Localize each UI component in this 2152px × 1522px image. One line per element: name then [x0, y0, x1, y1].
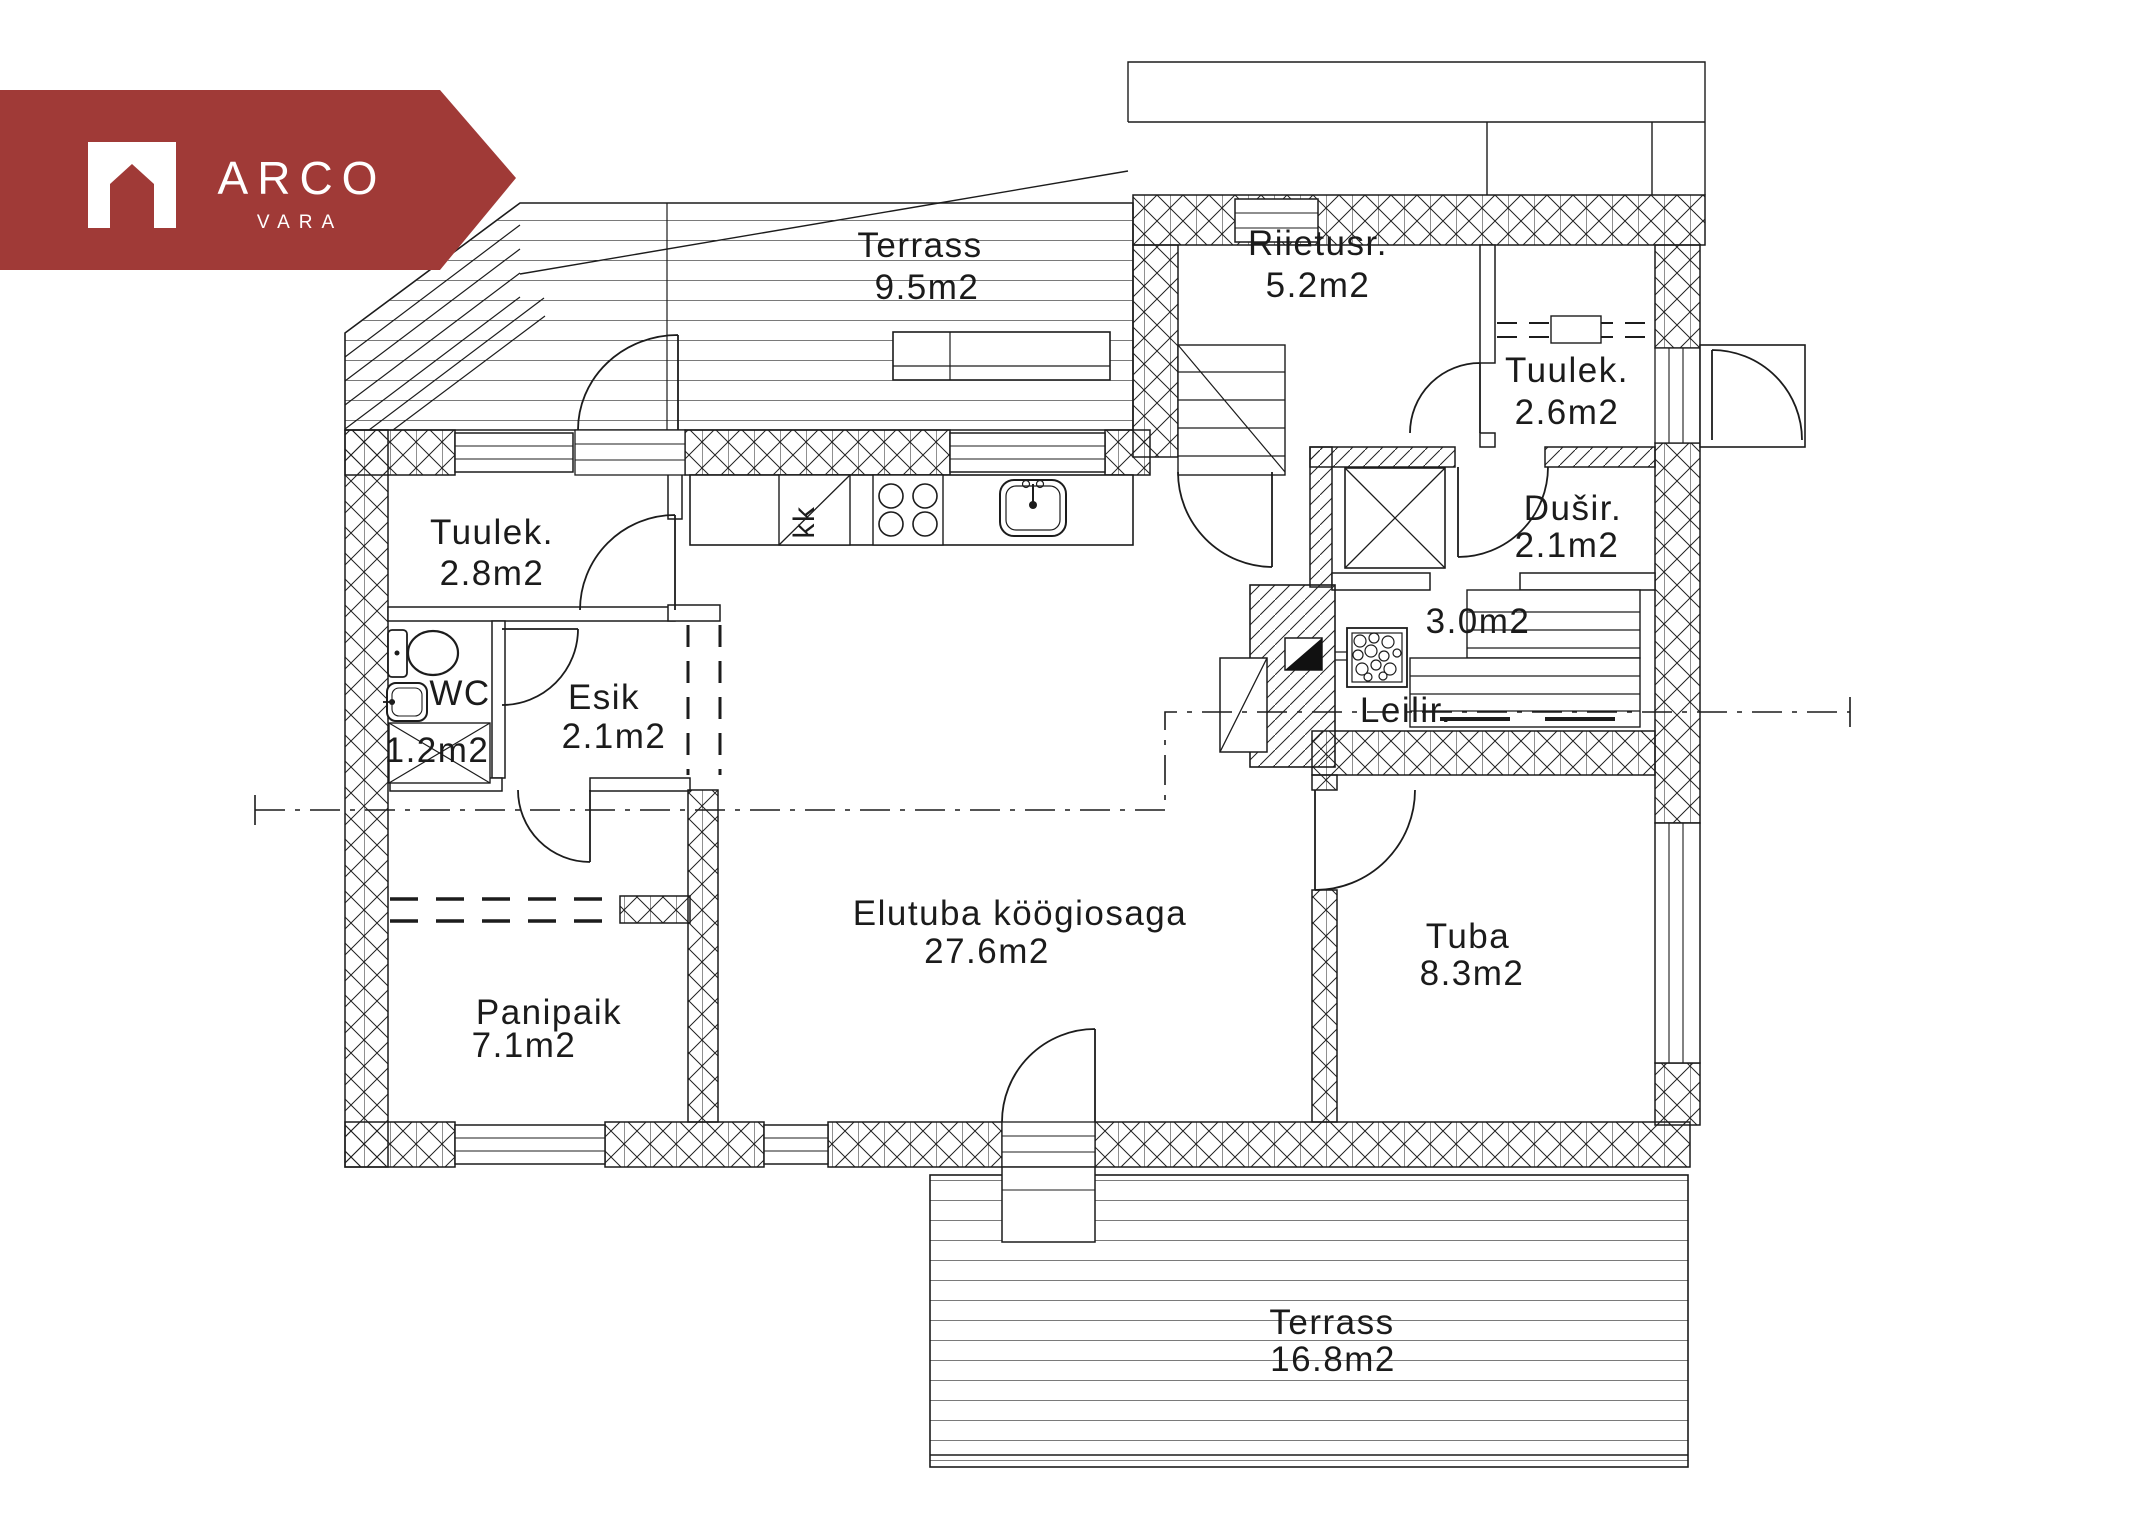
label-riietusr-name: Riietusr. [1248, 224, 1388, 263]
south-door-threshold [1002, 1122, 1095, 1167]
window-top-left [455, 433, 573, 472]
door-riietusr-stairs [1178, 472, 1272, 567]
label-tuba-area: 8.3m2 [1420, 954, 1525, 993]
door-terrace-bottom [1002, 1029, 1095, 1122]
stairs [1178, 345, 1285, 475]
chimney [1220, 585, 1347, 767]
logo: ARCO VARA [0, 90, 516, 270]
label-esik-name: Esik [568, 678, 640, 717]
label-tuulek-right-name: Tuulek. [1505, 351, 1629, 390]
terrace-top-step [893, 332, 1110, 380]
label-dusir-area: 2.1m2 [1515, 526, 1620, 565]
window-kitchen [950, 433, 1105, 472]
door-corridor [518, 790, 590, 862]
stove [873, 475, 943, 545]
wc-sink [383, 683, 427, 721]
label-terrass-top-name: Terrass [857, 226, 982, 265]
terrace-door-threshold [575, 430, 685, 475]
toilet [388, 630, 458, 677]
logo-sub-text: VARA [257, 212, 343, 233]
label-terrass-top-area: 9.5m2 [875, 268, 980, 307]
door-esik [502, 629, 578, 705]
kitchen-counter [690, 475, 1133, 545]
label-tuulek-left-name: Tuulek. [430, 513, 554, 552]
label-leilir-area: 3.0m2 [1426, 602, 1531, 641]
label-leilir-name: Leilir. [1360, 691, 1452, 730]
label-terrass-bottom-area: 16.8m2 [1270, 1340, 1396, 1379]
label-riietusr-area: 5.2m2 [1266, 266, 1371, 305]
floorplan-page: Terrass 9.5m2 Riietusr. 5.2m2 Tuulek. 2.… [0, 0, 2152, 1522]
door-riietusr-tuulek [1410, 363, 1480, 433]
label-terrass-bottom-name: Terrass [1269, 1303, 1394, 1342]
window-tuba-east [1655, 823, 1700, 1063]
flue-symbol [1285, 638, 1322, 670]
kitchen-sink [1000, 480, 1066, 536]
label-esik-area: 2.1m2 [562, 717, 667, 756]
label-wc-area: 1.2m2 [385, 731, 490, 770]
window-panipaik [455, 1125, 605, 1164]
logo-brand-text: ARCO [218, 152, 387, 204]
floorplan-drawing: Terrass 9.5m2 Riietusr. 5.2m2 Tuulek. 2.… [0, 0, 2152, 1522]
shower-tray [1345, 468, 1445, 568]
label-panipaik-area: 7.1m2 [472, 1026, 577, 1065]
label-kitchen-cabinet: kk [788, 506, 821, 539]
door-tuba [1315, 790, 1415, 890]
south-porch-step [1002, 1167, 1095, 1242]
door-tuulek-left [580, 515, 675, 610]
label-elutuba-area: 27.6m2 [924, 932, 1050, 971]
window-elutuba-south [764, 1125, 828, 1164]
sauna-heater [1347, 628, 1407, 687]
label-tuba-name: Tuba [1426, 917, 1510, 956]
label-tuulek-left-area: 2.8m2 [440, 554, 545, 593]
fireplace [1220, 658, 1267, 752]
label-dusir-name: Dušir. [1524, 489, 1622, 528]
entrance-threshold [1655, 348, 1700, 443]
label-tuulek-right-area: 2.6m2 [1515, 393, 1620, 432]
label-wc-name: WC [429, 674, 490, 713]
label-elutuba-name: Elutuba köögiosaga [853, 894, 1187, 933]
